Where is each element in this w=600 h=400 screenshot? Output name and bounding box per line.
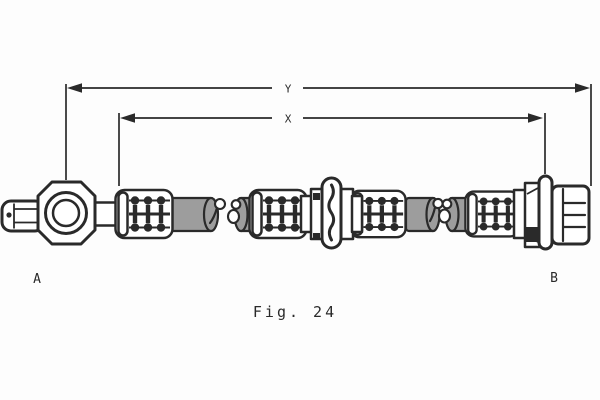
crimp-collar-2 [250,190,307,238]
arrow-right-icon [575,83,590,93]
end-a-label: A [33,272,41,287]
arrow-left-icon [67,83,82,93]
arrow-right-icon [528,113,543,123]
crimp-collar-4 [465,192,518,237]
figure-canvas: Y X A B Fig. 24 [0,0,600,400]
center-mounting-bracket [301,178,362,248]
dimension-y: Y [66,83,591,187]
tube-hole [6,212,11,217]
fitting-b-threaded [514,176,589,249]
brake-hose-diagram: Y X A B Fig. 24 [0,0,600,400]
dimension-x-label: X [285,113,292,126]
figure-caption: Fig. 24 [253,303,337,321]
dimension-x: X [119,113,545,187]
arrow-left-icon [120,113,135,123]
dimension-y-label: Y [285,83,292,96]
crimp-collar-1 [116,190,173,238]
end-b-label: B [550,271,558,286]
fitting-b-flange [539,176,552,249]
fitting-a-banjo [2,182,118,244]
banjo-eye-inner [53,200,79,226]
